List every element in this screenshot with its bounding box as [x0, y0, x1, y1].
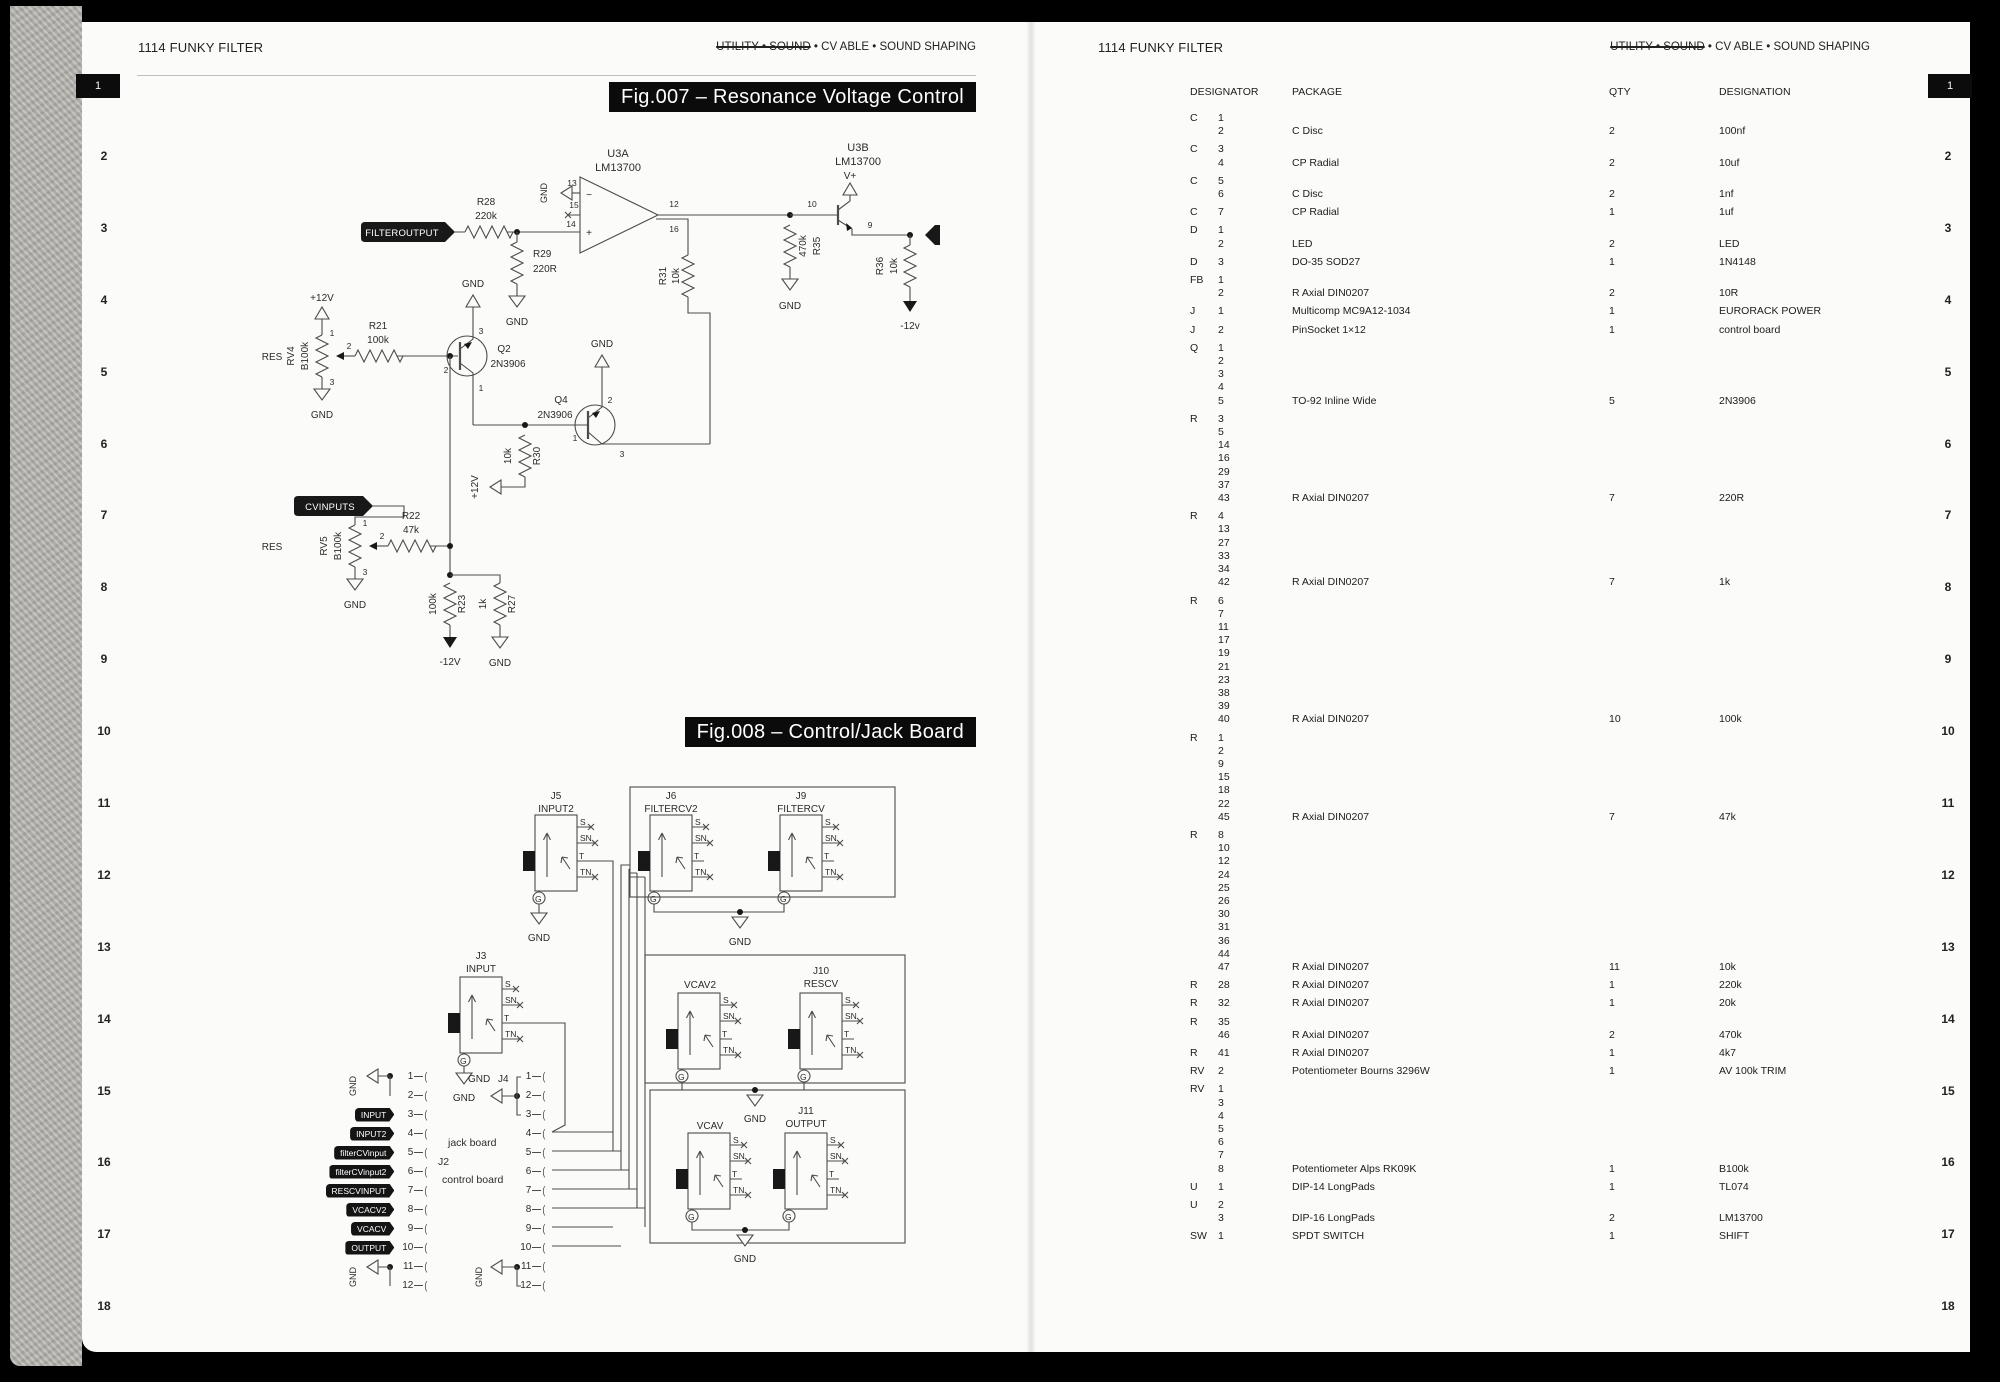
bom-row: RV 1 3 4 5 6 7 8 Potentiometer Alps RK09… — [1190, 1083, 1930, 1175]
connector-pin-row: VCACV2 8 ( — [320, 1200, 428, 1219]
jack-pin-sn: SN — [695, 833, 707, 843]
bom-package: R Axial DIN0207 — [1292, 713, 1609, 726]
r22-ref: R22 — [402, 511, 421, 522]
bom-designator-numbers: 1 — [1218, 1181, 1292, 1194]
pin-socket-icon: ( — [425, 1147, 428, 1159]
j5-ref: J5 — [551, 791, 562, 802]
bom-designation: EURORACK POWER — [1719, 305, 1930, 318]
bom-row: D 1 2 LED 2 LED — [1190, 224, 1930, 250]
bom-qty: 1 — [1609, 1065, 1719, 1078]
pin-number: 1 — [515, 1071, 531, 1082]
bom-row: R 35 46 R Axial DIN0207 2 470k — [1190, 1016, 1930, 1042]
margin-number: 4 — [1934, 293, 1962, 365]
connector-pin-row: 2 ( — [496, 1086, 546, 1105]
bom-qty: 1 — [1609, 1047, 1719, 1060]
bom-designation: 1k — [1719, 576, 1930, 589]
jack-pin-t: T — [844, 1029, 849, 1039]
tag-filteroutput: FILTEROUTPUT — [361, 222, 455, 242]
jack-vcav2 — [666, 993, 741, 1082]
margin-number: 18 — [1934, 1299, 1962, 1371]
bom-package: R Axial DIN0207 — [1292, 961, 1609, 974]
connector-pin-row: 8 ( — [496, 1200, 546, 1219]
vplus-label: V+ — [844, 171, 857, 182]
jack-pin-g: G — [800, 1072, 807, 1082]
j9-ref: J9 — [796, 791, 807, 802]
bom-designator-numbers: 1 — [1218, 1230, 1292, 1243]
bom-package: R Axial DIN0207 — [1292, 811, 1609, 824]
pin-number: 3 — [397, 1109, 413, 1120]
bom-designator-prefix: C — [1190, 143, 1218, 169]
bom-package: LED — [1292, 238, 1609, 251]
margin-number: 12 — [90, 868, 118, 940]
jack-pin-t: T — [694, 851, 699, 861]
margin-number: 6 — [90, 437, 118, 509]
r30-ref: R30 — [532, 446, 543, 465]
signal-tag: RESCVINPUT — [326, 1184, 395, 1198]
q4-pin1: 1 — [573, 433, 578, 443]
pin-socket-icon: ( — [425, 1223, 428, 1235]
bom-row: Q 1 2 3 4 5 TO-92 Inline Wide 5 2N3906 — [1190, 342, 1930, 408]
u3a-pin14: 14 — [566, 219, 576, 229]
bom-designator-numbers: 5 6 — [1218, 175, 1292, 201]
bom-table: DESIGNATOR PACKAGE QTY DESIGNATION C 1 2… — [1190, 86, 1930, 1249]
u3a-ref: U3A — [607, 148, 629, 160]
pin-number: 7 — [397, 1185, 413, 1196]
bom-designator-numbers: 41 — [1218, 1047, 1292, 1060]
pin-socket-icon: ( — [543, 1128, 546, 1140]
margin-number: 18 — [90, 1299, 118, 1371]
bom-designator-prefix: R — [1190, 1016, 1218, 1042]
pin-number: 10 — [515, 1242, 531, 1253]
bom-qty: 1 — [1609, 997, 1719, 1010]
tag-cvinputs: CVINPUTS — [294, 496, 373, 516]
bom-qty: 2 — [1609, 125, 1719, 138]
bom-row: C 7 CP Radial 1 1uf — [1190, 206, 1930, 219]
margin-number: 16 — [90, 1155, 118, 1227]
bom-row: C 5 6 C Disc 2 1nf — [1190, 175, 1930, 201]
jack-pin-sn: SN — [505, 995, 517, 1005]
j5-name: INPUT2 — [538, 804, 574, 815]
q4-pin3: 3 — [620, 449, 625, 459]
tag-resinput: RESINPUT — [925, 225, 940, 245]
fig008-title: Fig.008 – Control/Jack Board — [685, 717, 976, 747]
rv5-pin3: 3 — [363, 567, 368, 577]
bom-qty: 2 — [1609, 157, 1719, 170]
bom-designator-numbers: 6 7 11 17 19 21 23 38 39 40 — [1218, 595, 1292, 727]
gnd-label: GND — [779, 301, 801, 312]
margin-number: 14 — [90, 1012, 118, 1084]
u3a-pin16: 16 — [669, 224, 679, 234]
margin-number: 15 — [90, 1084, 118, 1156]
bom-qty: 1 — [1609, 305, 1719, 318]
gnd-label: GND — [744, 1114, 766, 1125]
pin-wire — [414, 1266, 423, 1267]
bom-qty: 11 — [1609, 961, 1719, 974]
bom-row: R 28 R Axial DIN0207 1 220k — [1190, 979, 1930, 992]
jack-pin-g: G — [535, 894, 542, 904]
u3a-pin15: 15 — [569, 200, 579, 210]
page-right-title: 1114 FUNKY FILTER — [1098, 40, 1223, 55]
p12-label: +12V — [310, 293, 334, 304]
connector-pin-row: RESCVINPUT 7 ( — [320, 1181, 428, 1200]
page-left-title: 1114 FUNKY FILTER — [138, 40, 263, 55]
gnd-label: GND — [734, 1254, 756, 1265]
bom-designator-prefix: Q — [1190, 342, 1218, 408]
bom-designation: 220R — [1719, 492, 1930, 505]
bom-row: U 2 3 DIP-16 LongPads 2 LM13700 — [1190, 1199, 1930, 1225]
connector-pin-row: VCACV 9 ( — [320, 1219, 428, 1238]
bom-designator-prefix: R — [1190, 413, 1218, 505]
jack-pin-g: G — [650, 894, 657, 904]
pin-socket-icon: ( — [425, 1280, 428, 1292]
connector-pin-row: 3 ( — [496, 1105, 546, 1124]
bom-row: FB 1 2 R Axial DIN0207 2 10R — [1190, 274, 1930, 300]
bom-qty: 7 — [1609, 576, 1719, 589]
jack-pin-tn: TN — [723, 1045, 734, 1055]
r28-value: 220k — [475, 211, 498, 222]
connector-pin-row: INPUT 3 ( — [320, 1105, 428, 1124]
neg12v-label: -12v — [900, 321, 919, 332]
connector-j2: 1 ( 2 ( INPUT 3 ( INPUT2 4 ( filterCVinp… — [320, 1067, 428, 1295]
schematic-fig008: J5 INPUT2 S SN T TN G GND J6 FILTERCV2 S… — [320, 785, 1015, 1325]
margin-number: 9 — [1934, 652, 1962, 724]
u3a-plus: + — [586, 228, 592, 239]
pin-wire — [532, 1171, 541, 1172]
bom-row: R 32 R Axial DIN0207 1 20k — [1190, 997, 1930, 1010]
pin-socket-icon: ( — [543, 1090, 546, 1102]
pin-number: 6 — [397, 1166, 413, 1177]
pin-socket-icon: ( — [425, 1242, 428, 1254]
pin-socket-icon: ( — [425, 1166, 428, 1178]
pin-number: 1 — [397, 1071, 413, 1082]
q2-pin2: 2 — [444, 365, 449, 375]
bom-designator-numbers: 4 13 27 33 34 42 — [1218, 510, 1292, 589]
margin-number: 10 — [90, 724, 118, 796]
pin-wire — [414, 1133, 423, 1134]
margin-number: 7 — [90, 508, 118, 580]
bom-package: R Axial DIN0207 — [1292, 576, 1609, 589]
connector-pin-row: 2 ( — [320, 1086, 428, 1105]
bom-designator-prefix: C — [1190, 175, 1218, 201]
bom-designator-numbers: 2 3 — [1218, 1199, 1292, 1225]
category-rest: • CV ABLE • SOUND SHAPING — [1705, 41, 1870, 53]
bom-row: J 2 PinSocket 1×12 1 control board — [1190, 324, 1930, 337]
connector-pin-row: filterCVinput 5 ( — [320, 1143, 428, 1162]
u3a-part: LM13700 — [595, 162, 641, 174]
bom-row: R 4 13 27 33 34 42 R Axial DIN0207 7 1k — [1190, 510, 1930, 589]
r35-value: 470k — [798, 234, 809, 257]
bom-designator-prefix: R — [1190, 1047, 1218, 1060]
category-struck: UTILITY • SOUND — [716, 41, 811, 53]
rv5-ref: RV5 — [319, 536, 330, 556]
r21-value: 100k — [367, 335, 390, 346]
pin-wire — [414, 1076, 423, 1077]
bom-designator-prefix: U — [1190, 1199, 1218, 1225]
bom-package: R Axial DIN0207 — [1292, 979, 1609, 992]
bom-qty: 5 — [1609, 395, 1719, 408]
jack-pin-t: T — [829, 1169, 834, 1179]
q4-ref: Q4 — [554, 395, 568, 406]
bom-qty: 1 — [1609, 1163, 1719, 1176]
bom-package: Potentiometer Bourns 3296W — [1292, 1065, 1609, 1078]
connector-pin-row: OUTPUT 10 ( — [320, 1238, 428, 1257]
bom-designator-numbers: 3 5 14 16 29 37 43 — [1218, 413, 1292, 505]
bom-designator-prefix: R — [1190, 979, 1218, 992]
bom-package: DIP-16 LongPads — [1292, 1212, 1609, 1225]
connector-pin-row: filterCVinput2 6 ( — [320, 1162, 428, 1181]
pin-socket-icon: ( — [425, 1090, 428, 1102]
rv4-ref: RV4 — [286, 346, 297, 366]
pin-socket-icon: ( — [543, 1109, 546, 1121]
pin-number: 7 — [515, 1185, 531, 1196]
rv4-value: B100k — [300, 341, 311, 370]
bom-designation: 47k — [1719, 811, 1930, 824]
jack-j10 — [788, 993, 863, 1082]
margin-number: 8 — [1934, 580, 1962, 652]
connector-pin-row: 1 ( — [320, 1067, 428, 1086]
r28-ref: R28 — [477, 197, 496, 208]
gnd-label: GND — [311, 410, 333, 421]
jack-pin-sn: SN — [580, 833, 592, 843]
jack-pin-sn: SN — [723, 1011, 735, 1021]
jack-pin-s: S — [580, 817, 586, 827]
r36-value: 10k — [889, 257, 900, 274]
gnd-label: GND — [591, 339, 613, 350]
pin-wire — [532, 1095, 541, 1096]
bom-qty: 10 — [1609, 713, 1719, 726]
pin-wire — [532, 1076, 541, 1077]
bom-designation: 470k — [1719, 1029, 1930, 1042]
u3a-minus: − — [586, 190, 592, 201]
bom-designator-prefix: R — [1190, 595, 1218, 727]
pin-number: 12 — [397, 1280, 413, 1291]
bom-designator-prefix: C — [1190, 112, 1218, 138]
bom-designation: 220k — [1719, 979, 1930, 992]
pin-wire — [414, 1285, 423, 1286]
margin-number: 16 — [1934, 1155, 1962, 1227]
jack-j11 — [773, 1133, 848, 1222]
r29-ref: R29 — [533, 249, 552, 260]
gnd-label: GND — [506, 317, 528, 328]
jack-pin-g: G — [780, 894, 787, 904]
connector-j4: 1 ( 2 ( 3 ( 4 ( 5 ( 6 ( 7 ( 8 ( 9 — [496, 1067, 546, 1295]
rv5-value: B100k — [333, 531, 344, 560]
q4-part: 2N3906 — [537, 410, 572, 421]
rv5-pin1: 1 — [363, 518, 368, 528]
bom-designator-prefix: U — [1190, 1181, 1218, 1194]
rv4-pin2: 2 — [347, 341, 352, 351]
margin-number-box: 1 — [1928, 74, 1972, 98]
bom-designation: 4k7 — [1719, 1047, 1930, 1060]
connector-pin-row: 4 ( — [496, 1124, 546, 1143]
bom-designation: 10k — [1719, 961, 1930, 974]
bom-designator-prefix: SW — [1190, 1230, 1218, 1243]
pin-socket-icon: ( — [543, 1071, 546, 1083]
bom-package: CP Radial — [1292, 157, 1609, 170]
bom-package: R Axial DIN0207 — [1292, 997, 1609, 1010]
bom-designator-numbers: 2 — [1218, 1065, 1292, 1078]
pin-wire — [532, 1190, 541, 1191]
bom-designator-numbers: 32 — [1218, 997, 1292, 1010]
margin-number: 17 — [1934, 1227, 1962, 1299]
j11-ref: J11 — [798, 1106, 814, 1117]
j2-ref: J2 — [438, 1156, 449, 1168]
bom-package: CP Radial — [1292, 206, 1609, 219]
res-label: RES — [262, 352, 283, 363]
pin-wire — [414, 1114, 423, 1115]
bom-designator-numbers: 1 2 — [1218, 112, 1292, 138]
jack-pin-t: T — [824, 851, 829, 861]
pin-socket-icon: ( — [425, 1128, 428, 1140]
jack-pin-tn: TN — [505, 1029, 516, 1039]
j6-ref: J6 — [666, 791, 677, 802]
margin-column-left: 2 3 4 5 6 7 8 9 10 11 12 13 14 15 16 17 … — [90, 149, 118, 1371]
j3-ref: J3 — [476, 951, 487, 962]
connector-pin-row: 11 ( — [320, 1257, 428, 1276]
p12-label: +12V — [470, 475, 481, 499]
bom-row: R 1 2 9 15 18 22 45 R Axial DIN0207 7 47… — [1190, 732, 1930, 824]
pin-socket-icon: ( — [425, 1109, 428, 1121]
bom-designator-numbers: 1 2 — [1218, 274, 1292, 300]
pin-number: 10 — [397, 1242, 413, 1253]
pin-socket-icon: ( — [425, 1185, 428, 1197]
res-label: RES — [262, 542, 283, 553]
bom-designator-numbers: 1 3 4 5 6 7 8 — [1218, 1083, 1292, 1175]
bom-row: C 3 4 CP Radial 2 10uf — [1190, 143, 1930, 169]
jack-pin-tn: TN — [845, 1045, 856, 1055]
jack-pin-tn: TN — [695, 867, 706, 877]
bom-package: DIP-14 LongPads — [1292, 1181, 1609, 1194]
bom-qty: 1 — [1609, 979, 1719, 992]
bom-designator-numbers: 7 — [1218, 206, 1292, 219]
pin-socket-icon: ( — [543, 1280, 546, 1292]
bom-package: SPDT SWITCH — [1292, 1230, 1609, 1243]
bom-package: R Axial DIN0207 — [1292, 1047, 1609, 1060]
q2-pin1: 1 — [479, 383, 484, 393]
header-rule — [137, 75, 976, 76]
bom-package: Potentiometer Alps RK09K — [1292, 1163, 1609, 1176]
vcav2-name: VCAV2 — [684, 980, 716, 991]
bom-designator-prefix: J — [1190, 305, 1218, 318]
bom-designation: 100k — [1719, 713, 1930, 726]
gnd-label: GND — [453, 1093, 475, 1104]
jack-pin-g: G — [688, 1212, 695, 1222]
margin-number: 3 — [1934, 221, 1962, 293]
bom-qty: 1 — [1609, 324, 1719, 337]
j3-name: INPUT — [466, 964, 496, 975]
jack-pin-sn: SN — [825, 833, 837, 843]
bom-designation: 10R — [1719, 287, 1930, 300]
margin-number-box: 1 — [76, 74, 120, 98]
page-right-category: UTILITY • SOUND • CV ABLE • SOUND SHAPIN… — [1450, 41, 1870, 53]
bom-package: C Disc — [1292, 125, 1609, 138]
bom-designator-numbers: 35 46 — [1218, 1016, 1292, 1042]
gnd-label: GND — [462, 279, 484, 290]
jack-pin-tn: TN — [825, 867, 836, 877]
pin-socket-icon: ( — [425, 1261, 428, 1273]
jack-pin-s: S — [733, 1135, 739, 1145]
connector-pin-row: 1 ( — [496, 1067, 546, 1086]
gnd-label: GND — [729, 937, 751, 948]
pin-wire — [414, 1095, 423, 1096]
bom-qty: 7 — [1609, 492, 1719, 505]
rv5-pin2: 2 — [380, 531, 385, 541]
connector-pin-row: 6 ( — [496, 1162, 546, 1181]
u3b-pin10: 10 — [807, 199, 817, 209]
jack-pin-s: S — [695, 817, 701, 827]
pin-socket-icon: ( — [543, 1242, 546, 1254]
connector-pin-row: 12 ( — [320, 1276, 428, 1295]
pin-socket-icon: ( — [543, 1147, 546, 1159]
pin-wire — [532, 1152, 541, 1153]
bom-header-designator: DESIGNATOR — [1190, 86, 1292, 98]
signal-tag: INPUT2 — [350, 1127, 394, 1141]
bom-row: R 6 7 11 17 19 21 23 38 39 40 R Axial DI… — [1190, 595, 1930, 727]
bom-package: Multicomp MC9A12-1034 — [1292, 305, 1609, 318]
pin-socket-icon: ( — [543, 1223, 546, 1235]
j4-board-label: jack board — [448, 1137, 496, 1149]
gnd-label: GND — [474, 1267, 484, 1288]
bom-designation: 1N4148 — [1719, 256, 1930, 269]
pin-number: 5 — [515, 1147, 531, 1158]
pin-wire — [414, 1228, 423, 1229]
bom-package: DO-35 SOD27 — [1292, 256, 1609, 269]
bom-designator-prefix: FB — [1190, 274, 1218, 300]
gnd-label: GND — [539, 183, 549, 204]
pin-number: 3 — [515, 1109, 531, 1120]
category-struck: UTILITY • SOUND — [1610, 41, 1705, 53]
jack-pin-s: S — [505, 979, 511, 989]
category-rest: • CV ABLE • SOUND SHAPING — [811, 41, 976, 53]
j6-name: FILTERCV2 — [644, 804, 698, 815]
bom-designation: 20k — [1719, 997, 1930, 1010]
bom-designator-numbers: 1 2 — [1218, 224, 1292, 250]
jack-pin-sn: SN — [733, 1151, 745, 1161]
r27-ref: R27 — [507, 594, 518, 613]
gnd-label: GND — [489, 658, 511, 669]
jack-pin-tn: TN — [830, 1185, 841, 1195]
bom-designator-prefix: J — [1190, 324, 1218, 337]
pin-number: 9 — [515, 1223, 531, 1234]
pin-wire — [414, 1209, 423, 1210]
bom-designator-prefix: D — [1190, 224, 1218, 250]
scan-edge-strip — [10, 6, 82, 1366]
connector-pin-row: 10 ( — [496, 1238, 546, 1257]
jack-j5 — [523, 815, 598, 904]
page-left-category: UTILITY • SOUND • CV ABLE • SOUND SHAPIN… — [556, 41, 976, 53]
pin-socket-icon: ( — [543, 1261, 546, 1273]
pin-number: 8 — [397, 1204, 413, 1215]
pin-number: 11 — [515, 1261, 531, 1272]
bom-designation: 10uf — [1719, 157, 1930, 170]
bom-qty: 2 — [1609, 1212, 1719, 1225]
bom-qty: 2 — [1609, 188, 1719, 201]
bom-package: R Axial DIN0207 — [1292, 287, 1609, 300]
pin-wire — [532, 1209, 541, 1210]
bom-designation: B100k — [1719, 1163, 1930, 1176]
rv4-pin1: 1 — [330, 328, 335, 338]
bom-row: J 1 Multicomp MC9A12-1034 1 EURORACK POW… — [1190, 305, 1930, 318]
pin-wire — [414, 1171, 423, 1172]
u3a-pin12: 12 — [669, 199, 679, 209]
pin-number: 2 — [397, 1090, 413, 1101]
jack-pin-g: G — [785, 1212, 792, 1222]
pin-socket-icon: ( — [425, 1204, 428, 1216]
connector-pin-row: 12 ( — [496, 1276, 546, 1295]
pin-number: 2 — [515, 1090, 531, 1101]
pin-number: 9 — [397, 1223, 413, 1234]
jack-j6 — [638, 815, 713, 904]
